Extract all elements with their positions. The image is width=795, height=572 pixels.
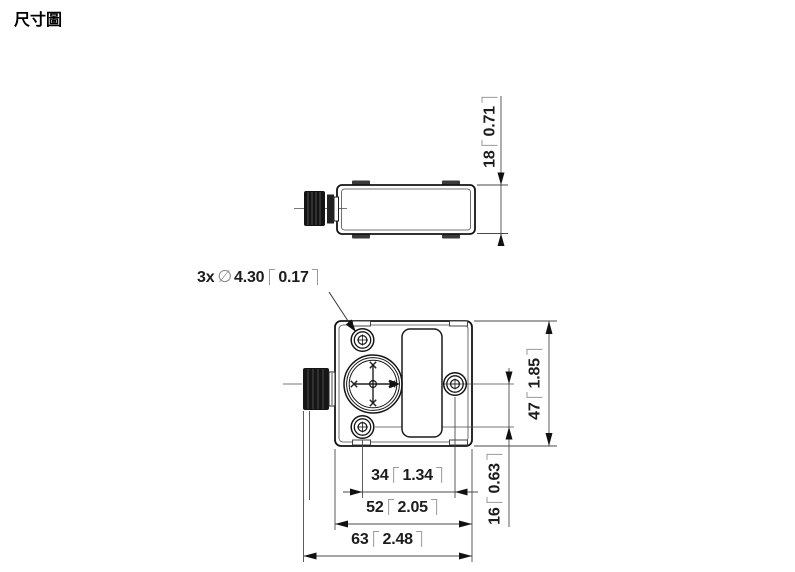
bracket-close-icon [482, 97, 498, 103]
hole-callout-label: 3x∅4.300.17 [197, 268, 323, 287]
m12-connector-side [304, 191, 339, 226]
front-view-drawing [283, 292, 557, 562]
dimension-63 [304, 553, 473, 560]
bracket-close-icon [416, 531, 422, 547]
label-window [402, 329, 442, 437]
housing-side-outline [337, 185, 475, 234]
dimension-diagram-page: 尺寸圖 [0, 0, 795, 572]
dimension-47 [546, 321, 553, 446]
bracket-open-icon [527, 391, 543, 397]
bracket-open-icon [389, 499, 395, 515]
bracket-open-icon [394, 467, 400, 483]
bracket-close-icon [436, 467, 442, 483]
bracket-close-icon [312, 269, 318, 285]
technical-drawing [0, 0, 795, 572]
dimension-34 [343, 489, 478, 496]
bracket-open-icon [487, 496, 503, 502]
bracket-close-icon [487, 454, 503, 460]
bracket-open-icon [269, 269, 275, 285]
dimension-16 [506, 368, 513, 527]
dim-label-total-width: 632.48 [351, 530, 427, 549]
dim-label-housing-height: 471.85 [526, 344, 545, 420]
bracket-open-icon [374, 531, 380, 547]
dim-label-hole-offset: 160.63 [486, 449, 505, 525]
dim-label-housing-width: 522.05 [366, 498, 442, 517]
mounting-hole-bottom-left [351, 416, 374, 439]
bracket-close-icon [431, 499, 437, 515]
diameter-icon: ∅ [214, 267, 234, 287]
mounting-hole-right [444, 373, 467, 396]
dimension-52 [335, 521, 472, 528]
dim-label-hole-spacing: 341.34 [371, 466, 447, 485]
bracket-close-icon [527, 349, 543, 355]
top-view-drawing [294, 96, 508, 246]
bracket-open-icon [482, 139, 498, 145]
m12-connector-front [303, 368, 335, 410]
dim-label-housing-depth: 180.71 [481, 92, 500, 168]
mounting-hole-top-left [351, 329, 374, 352]
